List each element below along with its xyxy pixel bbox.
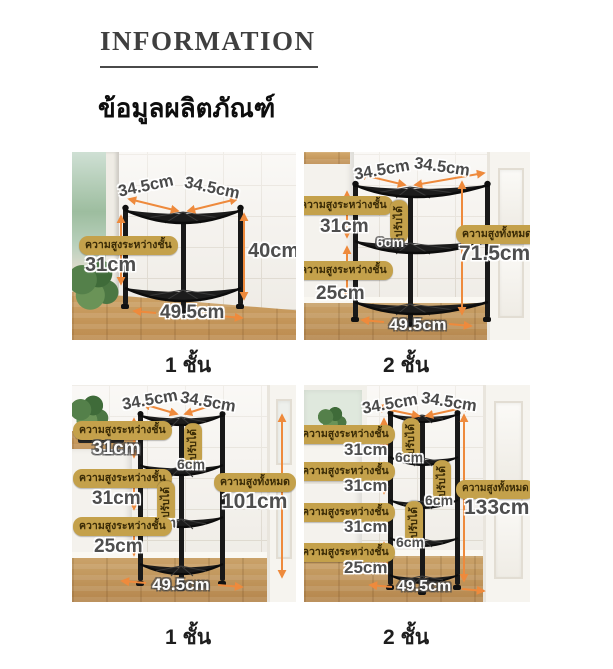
adjustable-value: 6cm bbox=[376, 234, 404, 250]
bottom-width-value: 49.5cm bbox=[397, 578, 451, 596]
adjustable-value: 6cm bbox=[425, 492, 453, 508]
caption-4-tier: 2 ชั้น bbox=[336, 621, 476, 654]
page-title: INFORMATION bbox=[100, 26, 316, 57]
tier-gap-value: 31cm bbox=[320, 216, 369, 238]
tier-gap-value: 31cm bbox=[92, 438, 141, 460]
total-height-value: 101cm bbox=[222, 490, 287, 514]
title-underline bbox=[100, 66, 318, 68]
tier-gap-badge: ความสูงระหว่างชั้น bbox=[304, 261, 393, 280]
bottom-width-value: 49.5cm bbox=[152, 575, 210, 595]
total-height-value: 133cm bbox=[464, 496, 529, 520]
adjustable-value: 6cm bbox=[177, 456, 205, 472]
tier-gap-value: 31cm bbox=[344, 440, 387, 460]
tier-gap-value: 31cm bbox=[92, 488, 141, 510]
caption-3-tier: 1 ชั้น bbox=[118, 621, 258, 654]
tier-gap-value: 25cm bbox=[94, 536, 143, 558]
tier-gap-badge: ความสูงระหว่างชั้น bbox=[73, 517, 172, 536]
tier-gap-value: 31cm bbox=[344, 476, 387, 496]
product-photo-2-tier: 34.5cm 34.5cm ความสูงระหว่างชั้น 31cm ปร… bbox=[304, 152, 530, 340]
tier-gap-value: 25cm bbox=[344, 558, 387, 578]
caption-2-tier: 2 ชั้น bbox=[336, 349, 476, 382]
tier-gap-value: 25cm bbox=[316, 283, 365, 305]
page-subtitle: ข้อมูลผลิตภัณฑ์ bbox=[98, 88, 275, 129]
total-height-value: 40cm bbox=[248, 240, 296, 263]
tier-gap-badge: ความสูงระหว่างชั้น bbox=[304, 196, 393, 215]
product-photo-1-tier: 34.5cm 34.5cm ความสูงระหว่างชั้น 31cm 40… bbox=[72, 152, 296, 340]
bottom-width-value: 49.5cm bbox=[389, 315, 447, 335]
total-height-value: 71.5cm bbox=[459, 242, 530, 266]
tier-gap-badge: ความสูงระหว่างชั้น bbox=[79, 236, 178, 255]
bottom-width-value: 49.5cm bbox=[160, 302, 224, 324]
product-photo-3-tier: 34.5cm 34.5cm ความสูงระหว่างชั้น 31cm ปร… bbox=[72, 385, 296, 602]
adjustable-value: 6cm bbox=[396, 534, 424, 550]
product-photo-4-tier: 34.5cm 34.5cm ความสูงระหว่างชั้น 31cm ปร… bbox=[304, 385, 530, 602]
adjustable-value: 6cm bbox=[395, 449, 423, 465]
caption-1-tier: 1 ชั้น bbox=[118, 349, 258, 382]
tier-gap-value: 31cm bbox=[85, 254, 136, 277]
tier-gap-value: 31cm bbox=[344, 517, 387, 537]
